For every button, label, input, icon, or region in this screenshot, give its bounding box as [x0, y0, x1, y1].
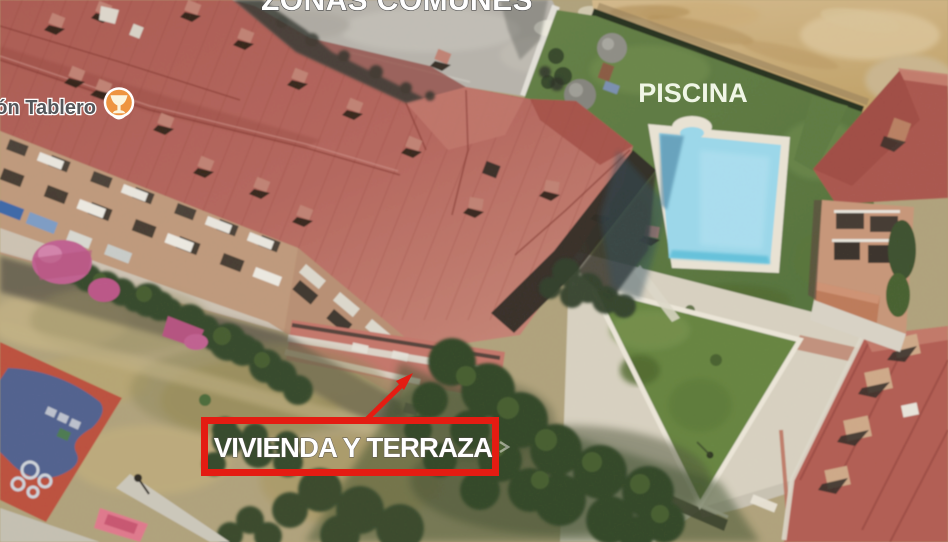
svg-text:cón Tablero: cón Tablero	[0, 97, 96, 119]
svg-text:ZONAS COMUNES: ZONAS COMUNES	[261, 0, 533, 17]
svg-text:VIVIENDA Y TERRAZA: VIVIENDA Y TERRAZA	[214, 432, 493, 463]
svg-text:PISCINA: PISCINA	[638, 78, 748, 108]
